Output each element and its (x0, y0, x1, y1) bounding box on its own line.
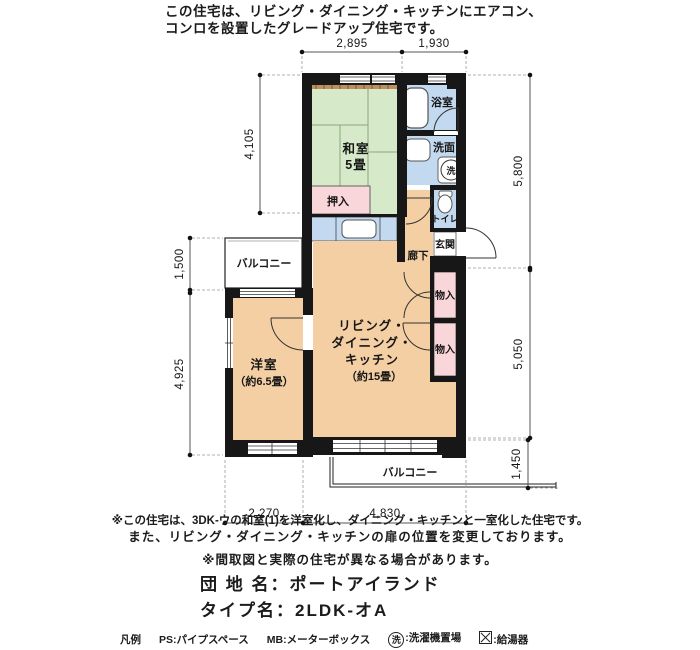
label-yoshitsu: 洋室 (250, 357, 277, 372)
doorway-senmen (407, 185, 430, 190)
note-3: ※間取図と実際の住宅が異なる場合があります。 (0, 549, 700, 568)
washbasin-icon (405, 139, 430, 161)
label-mononyu-lower: 物入 (435, 343, 455, 356)
danchi-label: 団 地 名： (200, 575, 289, 594)
legend: 凡例 PS:パイプスペース MB:メーターボックス 洗:洗濯機置場 :給湯器 (120, 630, 528, 648)
label-bath: 浴室 (431, 95, 453, 109)
label-ldk-1: リビング・ (338, 318, 406, 333)
window-bath (428, 75, 446, 83)
label-balcony-upper: バルコニー (237, 257, 292, 270)
dim-left-1: 4,105 (244, 128, 256, 159)
window-ldk-bottom (333, 440, 437, 452)
label-toilet: トイレ (431, 214, 458, 224)
legend-washer: 洗:洗濯機置場 (388, 630, 461, 648)
danchi-value: ポートアイランド (289, 575, 440, 594)
label-ldk-3: キッチン (345, 353, 399, 367)
label-senmen: 洗面 (433, 140, 455, 154)
window-yoshitsu-bottom (248, 443, 297, 454)
dim-right-1: 5,800 (513, 155, 525, 186)
note-2: また、リビング・ダイニング・キッチンの扉の位置を変更しております。 (0, 526, 700, 545)
dim-top-2: 1,930 (418, 38, 449, 50)
label-ldk-4: （約15畳） (346, 369, 402, 383)
svg-text:洗: 洗 (446, 165, 455, 176)
legend-heater: :給湯器 (479, 631, 528, 647)
label-rouka: 廊下 (408, 249, 429, 262)
toilet-icon (438, 191, 452, 213)
type-value: 2LDK-オA (295, 601, 388, 620)
kitchen-sink-icon (342, 220, 376, 238)
label-ldk-2: ダイニング・ (331, 335, 412, 350)
bathtub-icon (404, 88, 428, 128)
window-yoshitsu-left (225, 318, 233, 368)
legend-heading: 凡例 (120, 632, 141, 647)
type-label: タイプ名： (200, 601, 295, 620)
title-block: 団 地 名：ポートアイランド タイプ名：2LDK-オA (200, 572, 441, 624)
label-yoshitsu-size: （約6.5畳） (234, 374, 293, 388)
dim-left-3: 4,925 (174, 358, 186, 389)
dim-left-2: 1,500 (174, 248, 186, 279)
doorway-bath (434, 131, 458, 135)
legend-heater-label: :給湯器 (493, 634, 528, 646)
dim-right-3: 1,450 (511, 448, 523, 479)
legend-washer-label: :洗濯機置場 (405, 632, 461, 644)
window-yoshitsu-top (240, 289, 295, 297)
door-genkan (466, 228, 496, 258)
dim-right-2: 5,050 (513, 338, 525, 369)
label-balcony-lower: バルコニー (383, 466, 438, 479)
label-genkan: 玄関 (435, 238, 455, 251)
window-top-2 (372, 75, 395, 83)
window-top-1 (340, 75, 370, 83)
washer-circle-icon: 洗 (388, 632, 404, 648)
legend-mb: MB:メーターボックス (267, 632, 371, 647)
label-mononyu-upper: 物入 (435, 289, 455, 302)
label-washitsu-size: 5畳 (345, 158, 366, 172)
label-washitsu: 和室 (341, 141, 369, 156)
dim-top-1: 2,895 (336, 38, 367, 50)
legend-ps: PS:パイプスペース (159, 632, 249, 647)
danchi-name-row: 団 地 名：ポートアイランド (200, 572, 441, 598)
room-ldk-ext (430, 382, 456, 437)
type-name-row: タイプ名：2LDK-オA (200, 598, 441, 624)
water-heater-icon (479, 631, 492, 644)
doorway-yoshitsu (303, 315, 313, 350)
label-oshiire: 押入 (327, 194, 349, 208)
